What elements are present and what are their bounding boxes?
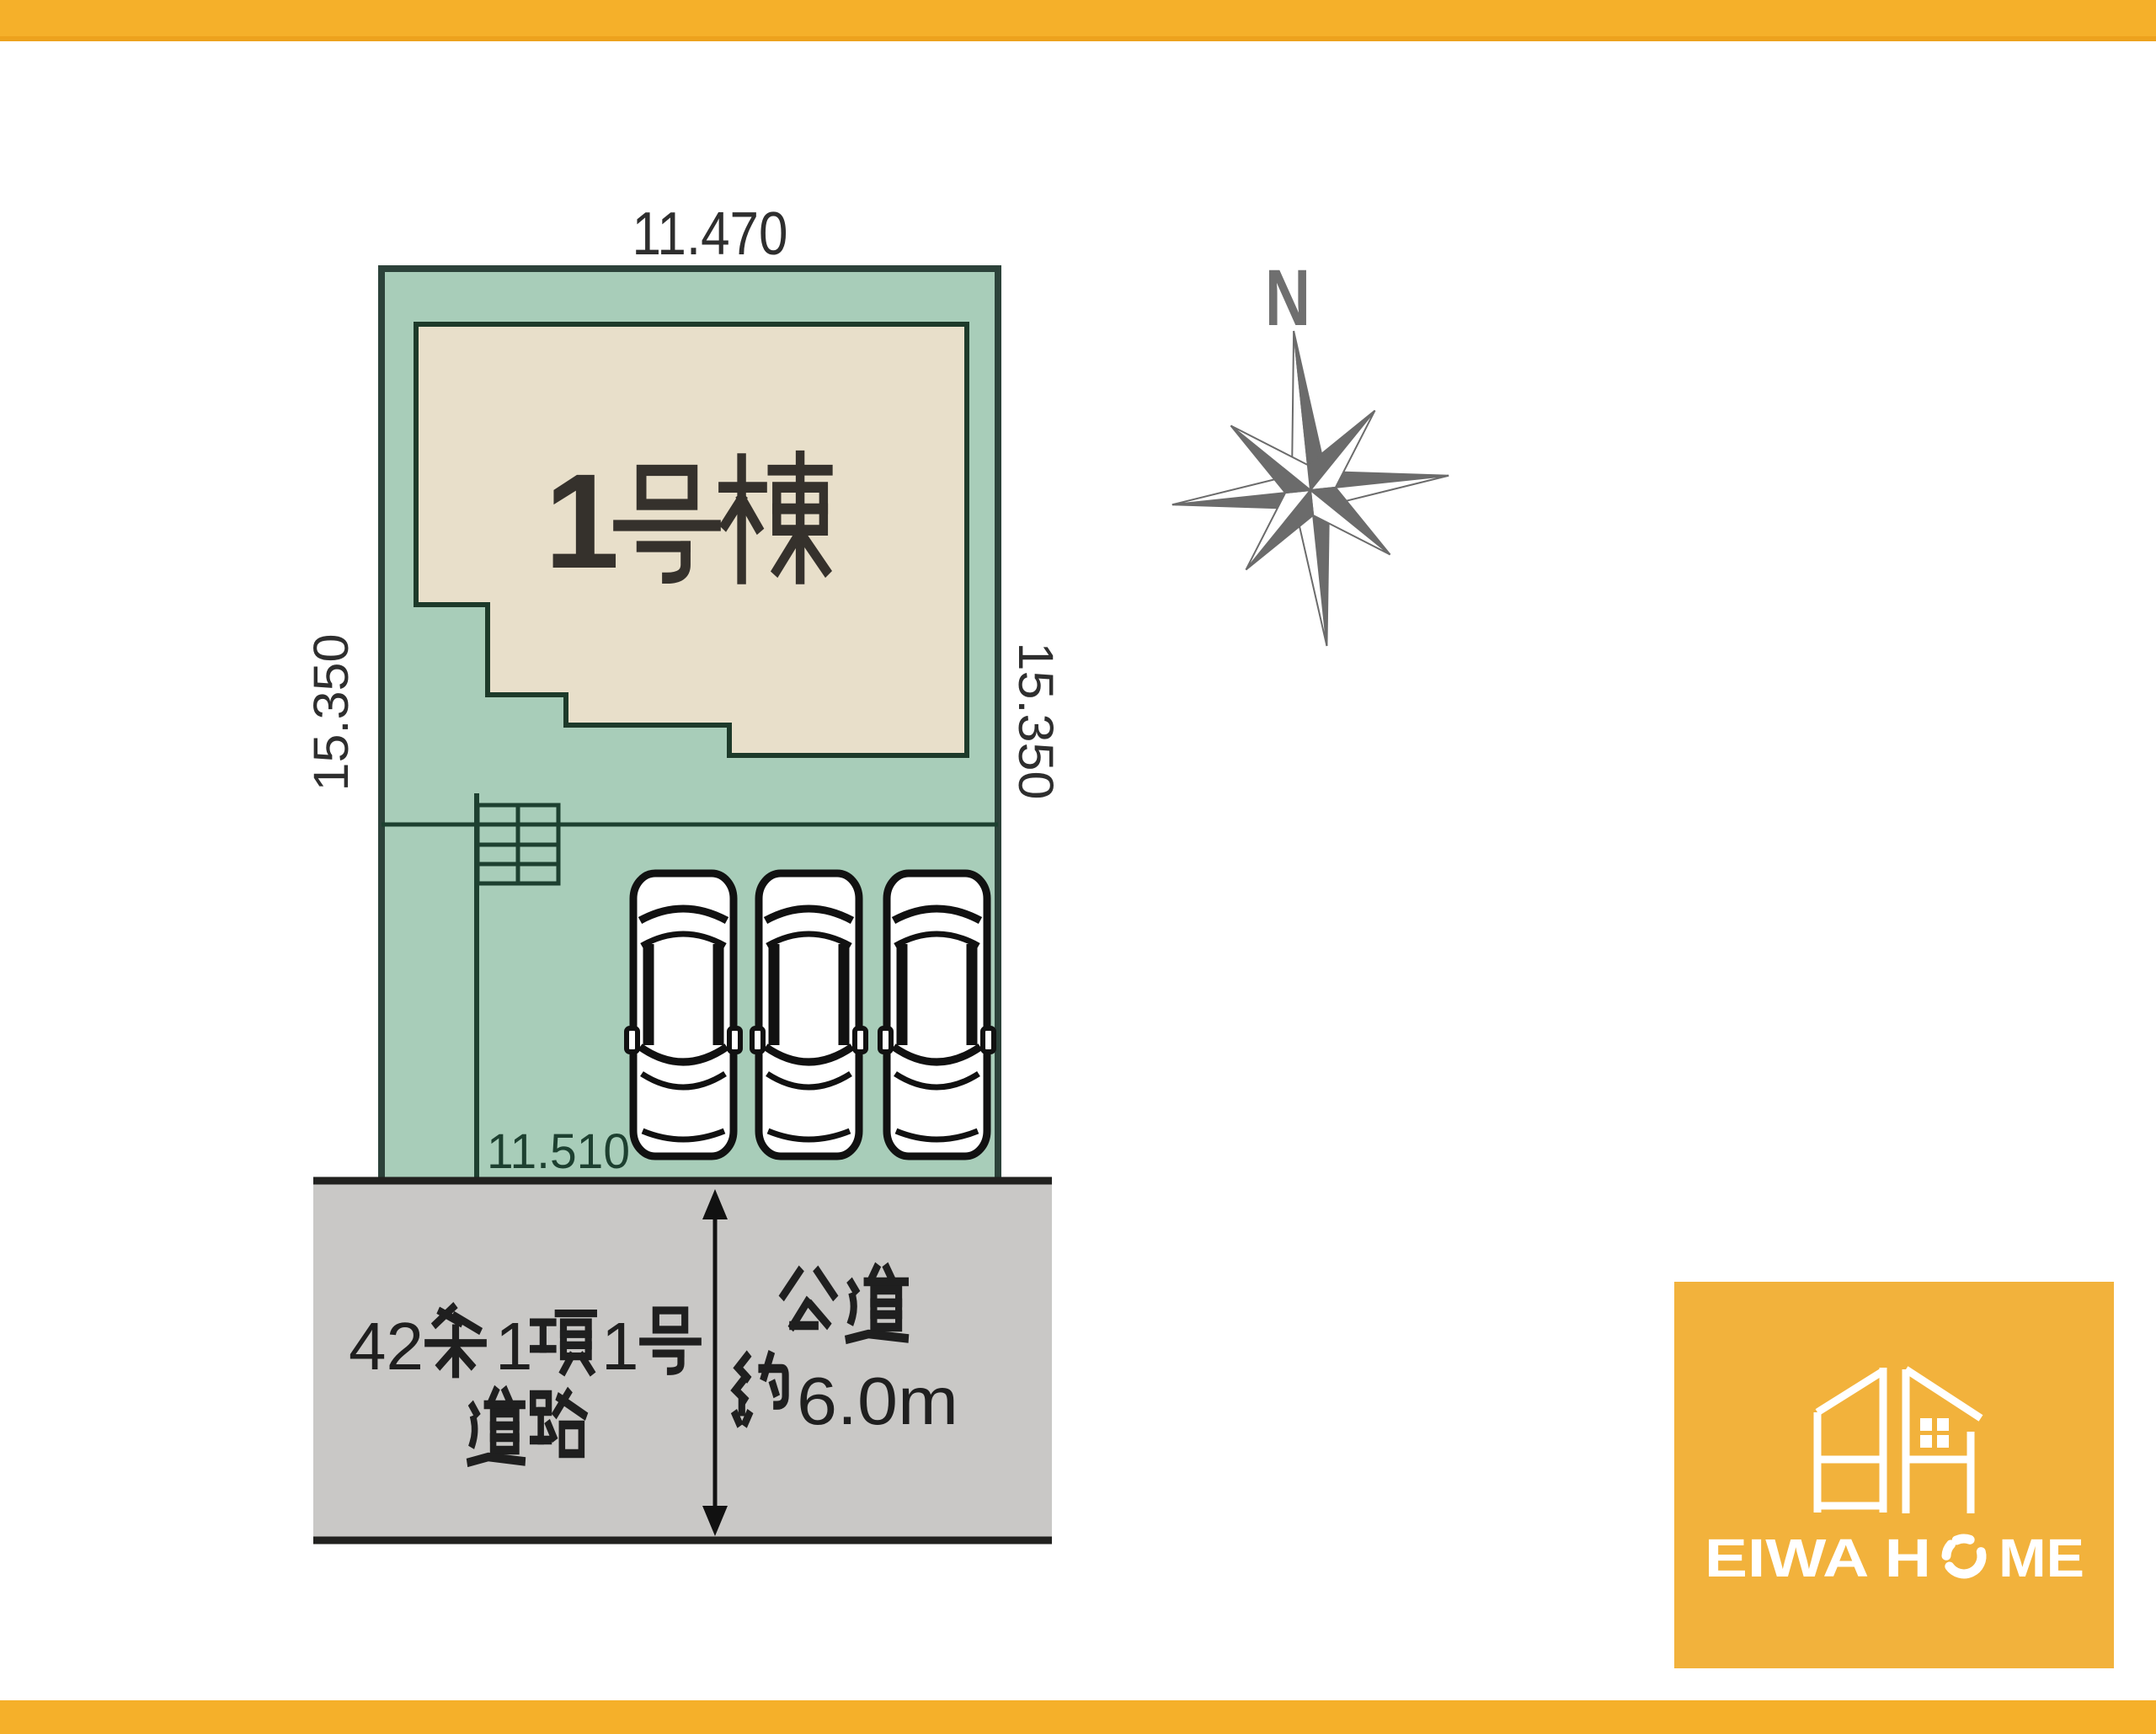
- svg-text:1: 1: [495, 1309, 533, 1384]
- svg-text:N: N: [1265, 253, 1310, 343]
- svg-text:15.350: 15.350: [1008, 643, 1063, 800]
- svg-text:42: 42: [349, 1309, 424, 1384]
- svg-text:11.470: 11.470: [632, 200, 788, 268]
- svg-text:11.510: 11.510: [487, 1124, 630, 1179]
- svg-text:15.350: 15.350: [304, 634, 359, 792]
- svg-text:1: 1: [545, 446, 620, 596]
- svg-text:ME: ME: [1999, 1528, 2084, 1588]
- svg-text:EIWA H: EIWA H: [1705, 1528, 1931, 1588]
- svg-text:6.0m: 6.0m: [797, 1363, 958, 1438]
- svg-text:1: 1: [601, 1309, 639, 1384]
